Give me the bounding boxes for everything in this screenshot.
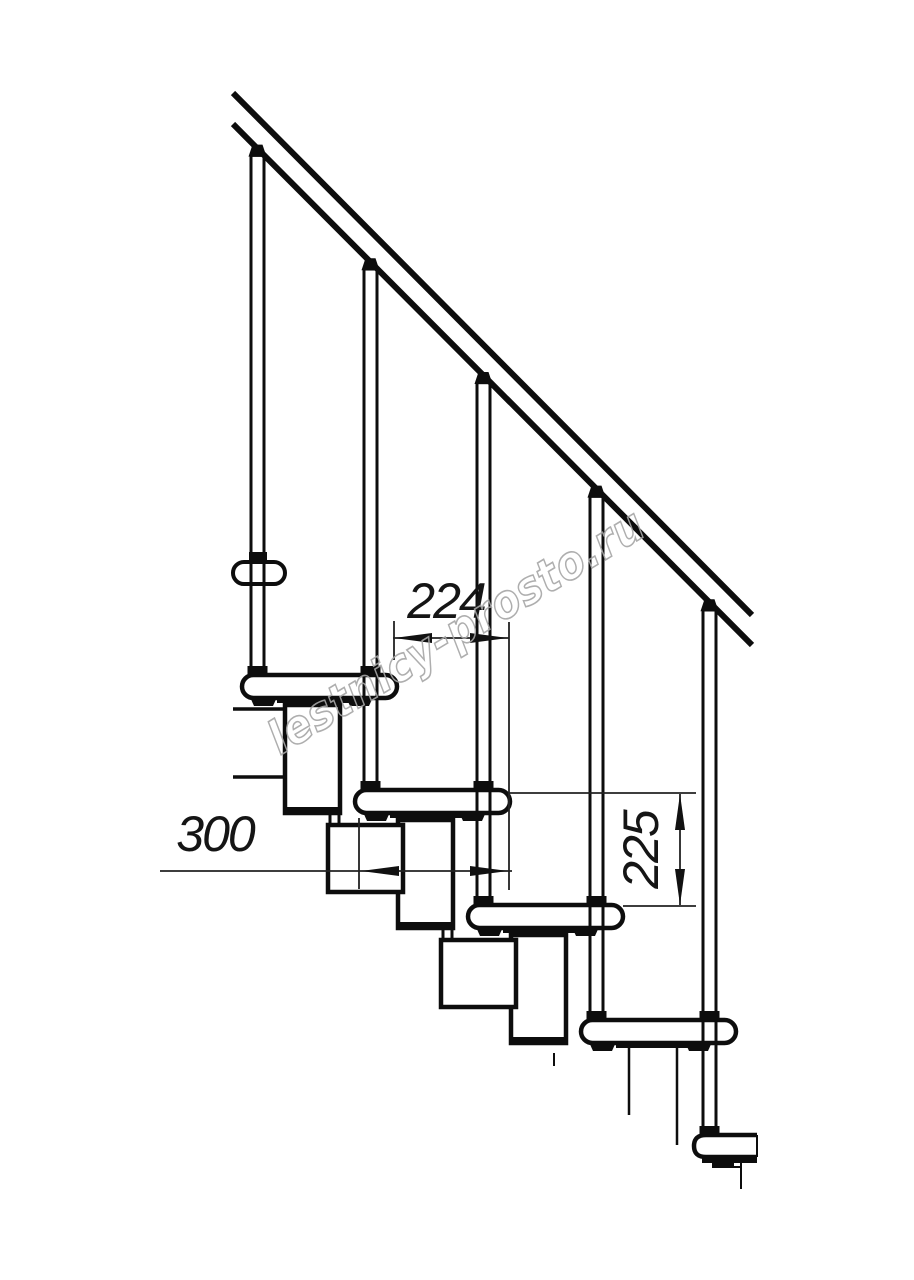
watermark: lestnicy-prosto.ru (258, 497, 654, 765)
tread-4-left-foot (589, 1042, 616, 1051)
tread-4-mount-bar (616, 1042, 694, 1048)
baluster-5 (703, 610, 716, 1134)
baluster-4-pass-collar (587, 896, 607, 905)
watermark-text: lestnicy-prosto.ru (258, 497, 654, 765)
tread-5 (694, 1135, 757, 1157)
tread-2-left-foot (363, 812, 390, 821)
technical-drawing-page: 224300225lestnicy-prosto.ru (0, 0, 914, 1280)
arrow-rise-down (675, 869, 685, 905)
dimension-text-depth: 300 (176, 806, 256, 862)
dimension-rise: 225 (613, 809, 669, 890)
staircase-drawing: 224300225lestnicy-prosto.ru (0, 0, 914, 1280)
module-tube-bottom-flange-3 (511, 1037, 566, 1043)
tread-5-mount-bar (702, 1155, 757, 1163)
handrail (233, 93, 752, 645)
baluster-4-foot-collar (587, 1011, 607, 1020)
handrail-lower-edge (233, 124, 752, 645)
baluster-3-foot-collar (474, 896, 494, 905)
tread-3 (468, 905, 623, 928)
upper-floor-edge (233, 562, 285, 584)
treads (233, 562, 757, 1157)
module-clamp-1 (328, 825, 403, 892)
module-tube-bottom-flange-1 (285, 807, 340, 813)
module-clamp-2 (441, 940, 516, 1007)
tread-3-right-foot (572, 927, 599, 936)
baluster-5-pass-collar (700, 1011, 720, 1020)
baluster-5-foot-collar (700, 1126, 720, 1135)
tread-1-left-foot (250, 697, 277, 706)
module-tube-2 (398, 820, 453, 928)
tread-2 (355, 790, 510, 813)
baluster-2-foot-collar (361, 781, 381, 790)
handrail-upper-edge (233, 93, 752, 615)
baluster-1-foot-collar (248, 666, 268, 675)
tread-3-left-foot (476, 927, 503, 936)
dimension-depth: 300 (176, 806, 256, 862)
baluster-1-floor-collar (249, 552, 267, 562)
arrow-rise-up (675, 794, 685, 830)
tread-3-mount-bar (503, 927, 581, 933)
baluster-1 (251, 156, 264, 674)
module-tube-bottom-flange-2 (398, 922, 453, 928)
baluster-3-pass-collar (474, 781, 494, 790)
module-tube-3 (511, 935, 566, 1043)
tread-4 (581, 1020, 736, 1043)
tread-2-mount-bar (390, 812, 468, 818)
tread-4-right-foot (685, 1042, 712, 1051)
dimension-text-rise: 225 (613, 809, 669, 890)
tread-2-right-foot (459, 812, 486, 821)
